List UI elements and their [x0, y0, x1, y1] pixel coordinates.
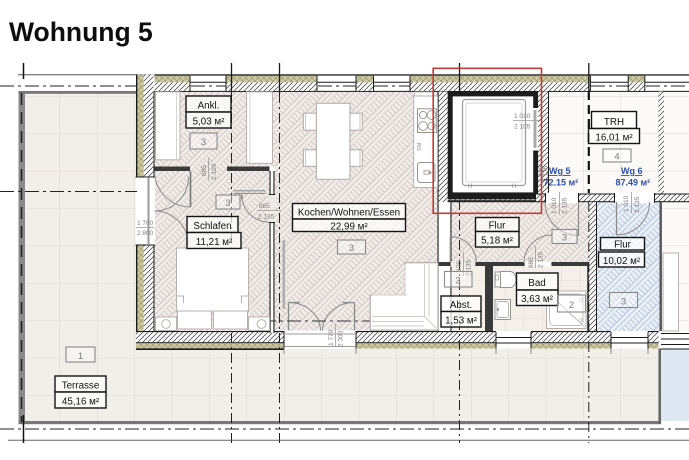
svg-text:2 135: 2 135 [258, 214, 275, 221]
svg-text:45,16 м²: 45,16 м² [62, 397, 100, 408]
svg-text:16,01 м²: 16,01 м² [595, 133, 633, 144]
svg-text:885: 885 [259, 203, 270, 210]
svg-text:675: 675 [456, 261, 463, 272]
svg-text:Bad: Bad [528, 278, 545, 289]
svg-text:3: 3 [349, 243, 354, 254]
svg-text:885: 885 [528, 257, 535, 268]
svg-text:1 770: 1 770 [328, 329, 335, 346]
svg-text:TRH: TRH [604, 117, 624, 128]
svg-text:H: H [468, 184, 472, 190]
svg-text:1 010: 1 010 [514, 113, 531, 120]
svg-text:1 010: 1 010 [623, 195, 630, 212]
svg-text:Wg 6: Wg 6 [621, 166, 643, 176]
svg-text:885: 885 [201, 165, 208, 176]
svg-text:3: 3 [201, 137, 206, 148]
svg-text:Kochen/Wohnen/Essen: Kochen/Wohnen/Essen [298, 208, 400, 219]
svg-text:Flur: Flur [614, 240, 632, 251]
svg-text:22,99 м²: 22,99 м² [330, 222, 368, 233]
svg-text:Wohnung 5: Wohnung 5 [9, 17, 153, 47]
svg-text:72.15 м²: 72.15 м² [544, 178, 579, 188]
svg-text:3: 3 [455, 276, 460, 287]
svg-text:2 135: 2 135 [538, 251, 545, 268]
svg-text:3,63 м²: 3,63 м² [521, 294, 554, 305]
svg-text:Schlafen: Schlafen [193, 221, 231, 232]
svg-text:5,18 м²: 5,18 м² [481, 236, 514, 247]
svg-text:2 100: 2 100 [211, 163, 218, 180]
svg-text:1: 1 [78, 351, 83, 362]
svg-text:1,53 м²: 1,53 м² [445, 316, 478, 327]
svg-text:2 135: 2 135 [634, 196, 641, 213]
svg-text:1 700: 1 700 [137, 220, 154, 227]
svg-text:3: 3 [562, 233, 567, 244]
svg-text:Abst.: Abst. [450, 300, 472, 311]
svg-text:10,02 м²: 10,02 м² [603, 256, 641, 267]
svg-text:Wg 5: Wg 5 [549, 166, 571, 176]
svg-text:H: H [512, 184, 516, 190]
svg-text:SM: SM [417, 142, 423, 151]
svg-text:87.49 м²: 87.49 м² [616, 178, 651, 188]
svg-text:11,21 м²: 11,21 м² [196, 237, 233, 248]
svg-text:Terrasse: Terrasse [62, 381, 100, 392]
svg-text:1 010: 1 010 [551, 197, 558, 214]
svg-text:2 105: 2 105 [514, 124, 531, 131]
svg-text:2 300: 2 300 [338, 330, 345, 347]
svg-text:Flur: Flur [489, 221, 507, 232]
svg-text:Ankl.: Ankl. [198, 101, 220, 112]
svg-text:2: 2 [569, 300, 574, 311]
svg-text:5,03 м²: 5,03 м² [193, 117, 226, 128]
svg-text:4: 4 [614, 152, 619, 163]
svg-text:3: 3 [225, 198, 230, 209]
svg-text:2 135: 2 135 [562, 197, 569, 214]
svg-text:2 800: 2 800 [137, 230, 154, 237]
svg-text:3: 3 [621, 297, 626, 308]
